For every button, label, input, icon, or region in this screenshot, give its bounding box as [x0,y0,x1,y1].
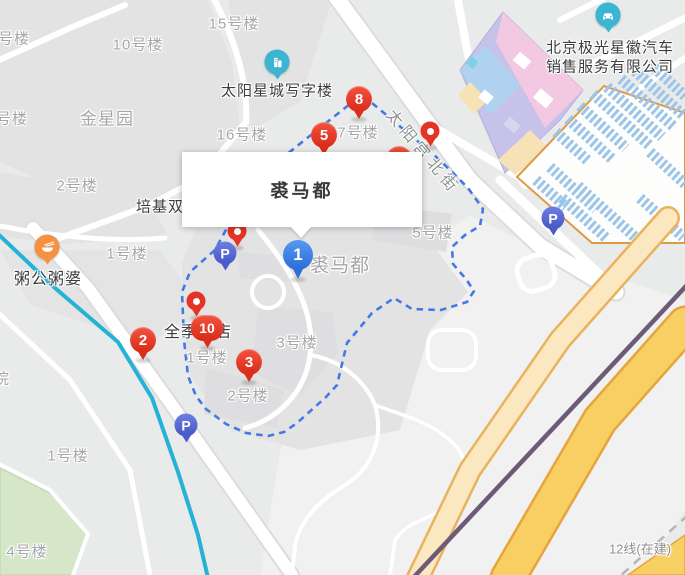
office-building-icon [269,54,285,70]
marker-number: 1 [293,245,302,265]
info-popup[interactable]: 裘马都 [182,152,422,227]
building-label: 7号楼 [337,122,378,143]
numbered-marker-1[interactable]: 1 [283,240,313,270]
poi-label: 太阳星城写字楼 [221,80,333,101]
parking-letter: P [181,417,190,433]
building-label: 号楼 [0,108,28,129]
marker-shadow [352,117,367,122]
poi-label: 粥公粥婆 [14,265,82,289]
building-label: 裘马都 [310,251,370,278]
marker-shadow [136,358,151,363]
building-label: 10号楼 [113,34,164,55]
marker-number: 10 [199,320,215,336]
poi-label: 北京极光星徽汽车 [546,37,674,58]
building-label: 金星园 [80,105,134,130]
car-dealer-poi-marker[interactable] [596,3,621,28]
car-dealer-icon [600,7,617,24]
map-canvas [0,0,685,575]
building-label: 15号楼 [209,13,260,34]
marker-shadow [424,146,436,151]
marker-shadow [291,277,306,282]
numbered-marker-2[interactable]: 2 [130,327,156,353]
numbered-marker-3[interactable]: 3 [236,349,262,375]
marker-number: 3 [245,354,253,371]
numbered-marker-8[interactable]: 8 [346,86,372,112]
map-viewport[interactable]: 太阳宫北街 12线(在建) 裘马都 号楼10号楼15号楼金星园号楼16号楼7号楼… [0,0,685,575]
marker-number: 2 [139,332,147,349]
parking-marker[interactable]: P [214,242,237,265]
building-label: 2号楼 [227,385,268,406]
subway-line-label: 12线(在建) [609,539,671,558]
restaurant-poi-marker[interactable] [35,235,60,260]
parking-letter: P [220,245,229,261]
parking-letter: P [548,210,557,226]
building-label: 号楼 [0,28,30,49]
building-label: 3号楼 [276,332,317,353]
building-label: 16号楼 [217,124,268,145]
red-dot-marker[interactable] [421,122,440,141]
marker-shadow [200,346,215,351]
numbered-marker-10[interactable]: 10 [191,315,224,341]
building-label: 1号楼 [106,243,147,264]
marker-number: 5 [320,127,328,144]
building-label: 2号楼 [56,175,97,196]
marker-shadow [242,380,257,385]
poi-label: 培基双 [136,196,184,217]
marker-number: 8 [355,91,363,108]
red-dot-marker[interactable] [187,292,206,311]
building-label: 院 [0,368,10,389]
popup-title: 裘马都 [271,177,334,203]
parking-marker[interactable]: P [175,414,198,437]
building-label: 4号楼 [6,541,47,562]
numbered-marker-5[interactable]: 5 [311,122,337,148]
restaurant-icon [39,239,55,255]
office-building-poi-marker[interactable] [265,50,290,75]
parking-marker[interactable]: P [542,207,565,230]
poi-label: 销售服务有限公司 [546,56,674,77]
building-label: 1号楼 [47,445,88,466]
